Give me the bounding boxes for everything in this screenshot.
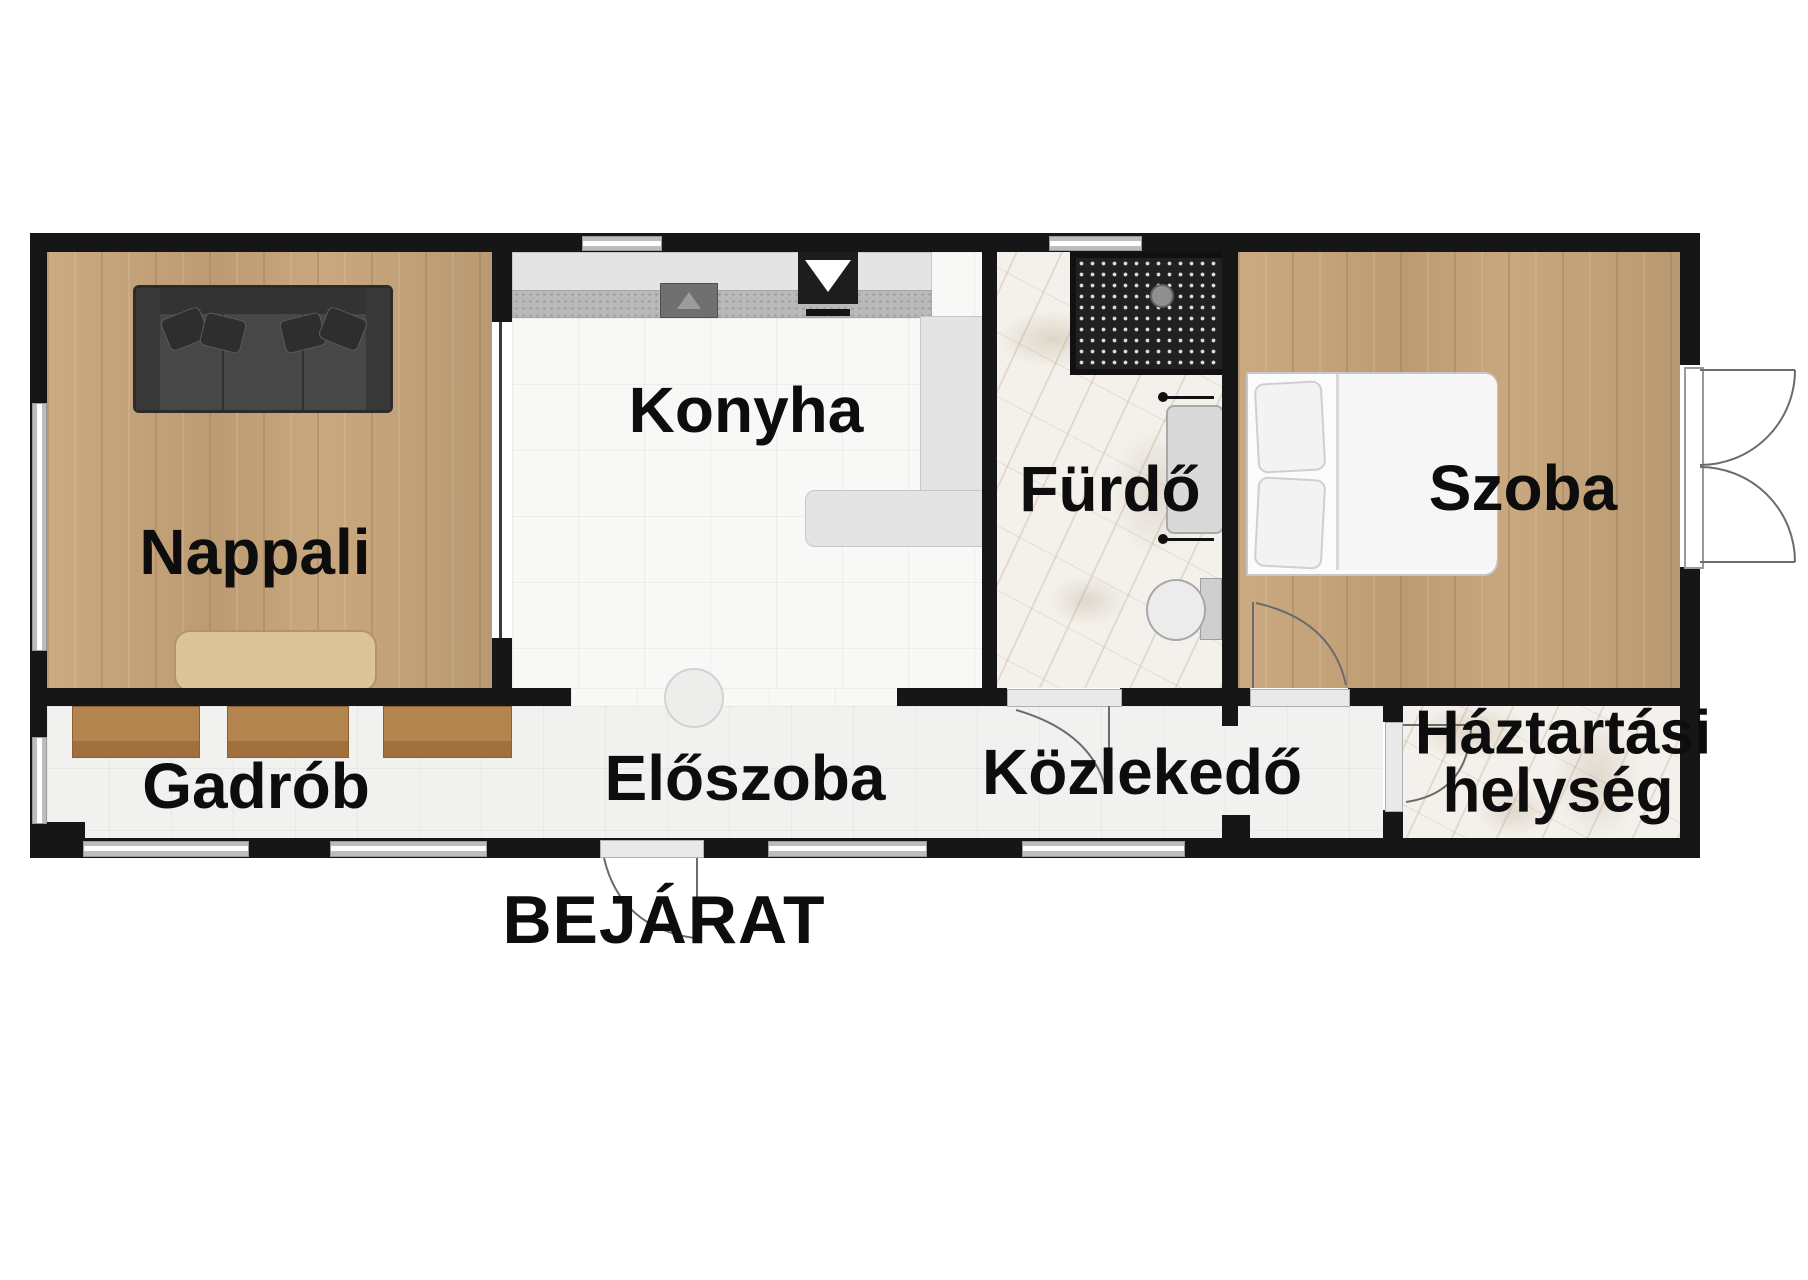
french-door-arc-upper (1700, 370, 1795, 465)
room-label-eloszoba: Előszoba (605, 741, 886, 815)
room-label-konyha: Konyha (629, 373, 864, 447)
room-label-gadrob: Gadrób (142, 749, 370, 823)
floor-plan-page: { "document": { "type": "floor-plan", "l… (0, 0, 1808, 1280)
room-label-furdo: Fürdő (1019, 452, 1200, 526)
door-swing-overlay (0, 0, 1808, 1280)
french-door-arc-lower (1700, 467, 1795, 562)
room-label-nappali: Nappali (139, 515, 370, 589)
szoba-door-arc (1256, 603, 1346, 685)
room-label-haztartasi-line2: helység (1443, 756, 1674, 827)
room-label-kozlekedo: Közlekedő (982, 735, 1302, 809)
room-label-szoba: Szoba (1429, 451, 1617, 525)
entrance-label: BEJÁRAT (502, 881, 825, 959)
